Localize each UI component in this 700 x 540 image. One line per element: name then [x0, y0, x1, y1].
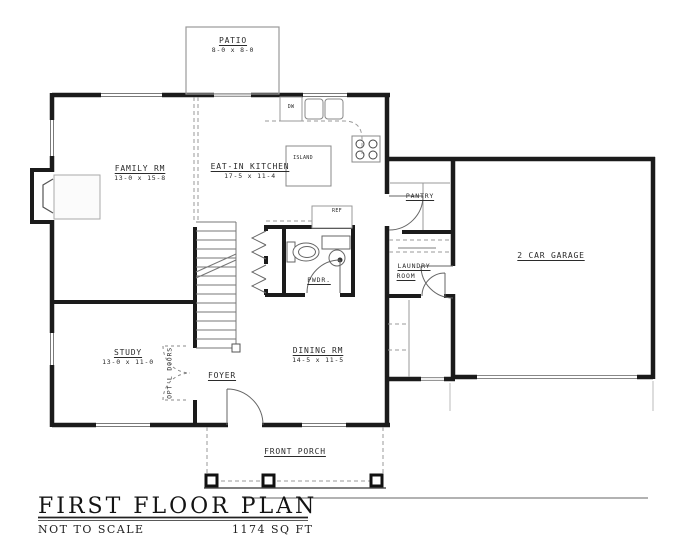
bifold-closet-doors [252, 231, 266, 293]
patio-label: PATIO [219, 36, 247, 45]
kitchen-dims: 17-5 x 11-4 [224, 173, 276, 180]
family-room-dims: 13-0 x 15-8 [114, 175, 166, 182]
study-dims: 13-0 x 11-0 [102, 359, 154, 366]
pantry-shelves [390, 183, 450, 230]
front-porch-label: FRONT PORCH [264, 447, 326, 456]
laundry-mudroom-details [388, 183, 451, 380]
garage-entry-door-swing [421, 266, 453, 298]
driveway-lines [450, 381, 653, 411]
pantry-door-swing [389, 196, 423, 230]
dining-room-label: DINING RM [293, 346, 344, 355]
dining-room-dims: 14-5 x 11-5 [292, 357, 344, 364]
pantry-label: PANTRY [406, 193, 434, 200]
plan-title: FIRST FLOOR PLAN [38, 494, 317, 519]
basin [329, 250, 345, 266]
front-door-swing [227, 389, 263, 425]
garage-label: 2 CAR GARAGE [517, 251, 584, 260]
floor-plan-drawing [0, 0, 700, 540]
powder-room-fixtures [287, 236, 350, 266]
family-room-label: FAMILY RM [115, 164, 166, 173]
island-label: ISLAND [293, 156, 313, 162]
stairs [196, 222, 240, 352]
rear-door-threshold [421, 378, 444, 381]
area-label: 1174 SQ FT [232, 523, 314, 536]
refrigerator-label: REF [332, 209, 342, 215]
optional-doors-label: OPT'L DOORS [166, 347, 173, 399]
laundry-hall-door-swing [422, 273, 445, 296]
laundry-label-line1: LAUNDRY [398, 263, 431, 270]
sink-basin-right [325, 99, 343, 119]
interior-walls [52, 225, 453, 427]
kitchen-label: EAT-IN KITCHEN [211, 162, 290, 171]
patio-dims: 8-0 x 8-0 [212, 47, 254, 54]
island-box [286, 146, 331, 186]
scale-note: NOT TO SCALE [38, 523, 145, 536]
newel-post [232, 344, 240, 352]
vanity [322, 236, 350, 249]
floor-plan-page: PATIO 8-0 x 8-0 FAMILY RM 13-0 x 15-8 EA… [0, 0, 700, 540]
cased-opening-dashed [194, 97, 198, 222]
powder-room-label: PWDR. [307, 277, 331, 284]
front-porch-outline [204, 427, 386, 488]
dishwasher-label: DW [288, 105, 295, 111]
foyer-label: FOYER [208, 371, 236, 380]
sink-basin-left [305, 99, 323, 119]
study-label: STUDY [114, 348, 142, 357]
fireplace [32, 170, 100, 222]
laundry-label-line2: ROOM [397, 273, 416, 280]
garage-door [477, 376, 637, 379]
